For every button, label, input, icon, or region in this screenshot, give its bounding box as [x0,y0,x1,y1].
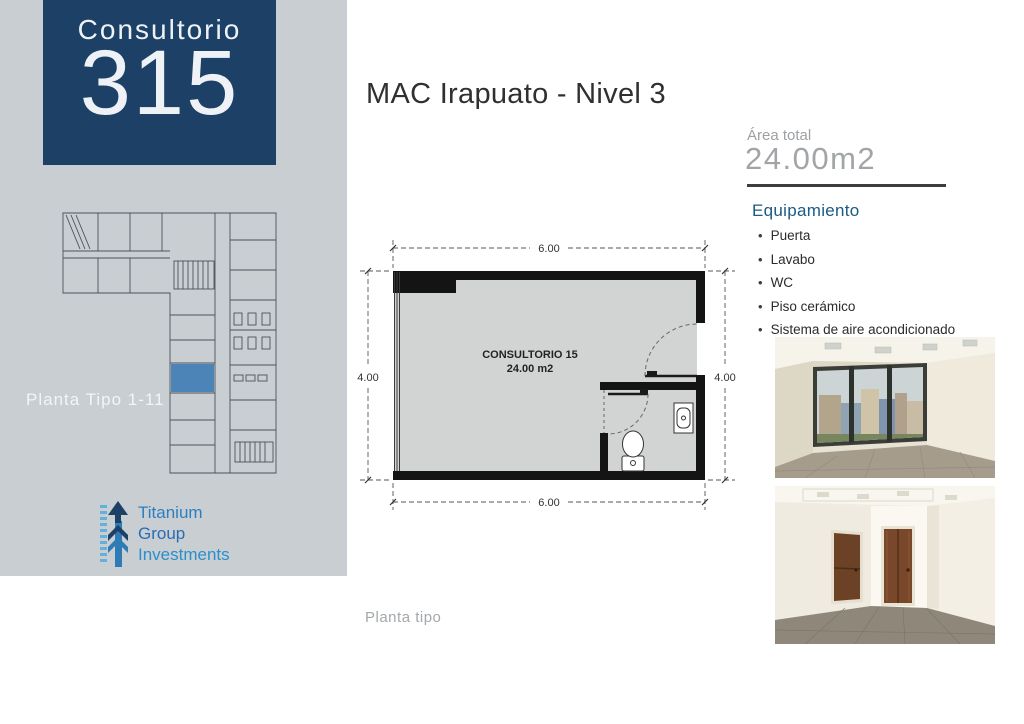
equipment-item: •Puerta [758,228,1018,243]
equipment-item: •Piso cerámico [758,299,1018,314]
room-label: CONSULTORIO 15 [482,349,578,361]
dim-right: 4.00 [714,372,735,384]
logo-line-titanium: Titanium [138,502,230,523]
logo-line-investments: Investments [138,544,230,565]
dim-top: 6.00 [538,243,559,255]
unit-floorplan: 6.00 6.00 4.00 4.00 CONSULTORIO 15 24.00… [350,238,745,515]
equipment-item: •Lavabo [758,252,1018,267]
titanium-logo-icon [100,499,136,569]
divider-line [747,184,946,187]
company-logo: Titanium Group Investments [100,499,230,569]
plan-type-caption: Planta Tipo 1-11 [26,390,165,410]
unit-number: 315 [80,46,240,121]
building-plan-thumbnail [58,205,278,480]
bullet-icon: • [758,228,763,243]
page-title: MAC Irapuato - Nivel 3 [366,78,666,111]
bullet-icon: • [758,322,763,337]
bullet-icon: • [758,275,763,290]
highlighted-unit [171,364,214,392]
room-area-label: 24.00 m2 [507,363,553,375]
equipment-title: Equipamiento [752,201,860,221]
brochure-slide: Consultorio 315 [0,0,1024,724]
unit-card: Consultorio 315 [43,0,276,165]
photo-office-window-view [775,337,995,478]
dim-bottom: 6.00 [538,497,559,509]
sidebar: Consultorio 315 [0,0,347,576]
logo-line-group: Group [138,523,230,544]
equipment-item: •Sistema de aire acondicionado [758,322,1018,337]
floorplan-caption: Planta tipo [365,609,441,626]
bullet-icon: • [758,252,763,267]
photo-office-wooden-doors [775,486,995,644]
area-total-value: 24.00m2 [745,141,876,177]
bullet-icon: • [758,299,763,314]
equipment-list: •Puerta •Lavabo •WC •Piso cerámico •Sist… [758,228,1018,346]
dim-left: 4.00 [357,372,378,384]
equipment-item: •WC [758,275,1018,290]
